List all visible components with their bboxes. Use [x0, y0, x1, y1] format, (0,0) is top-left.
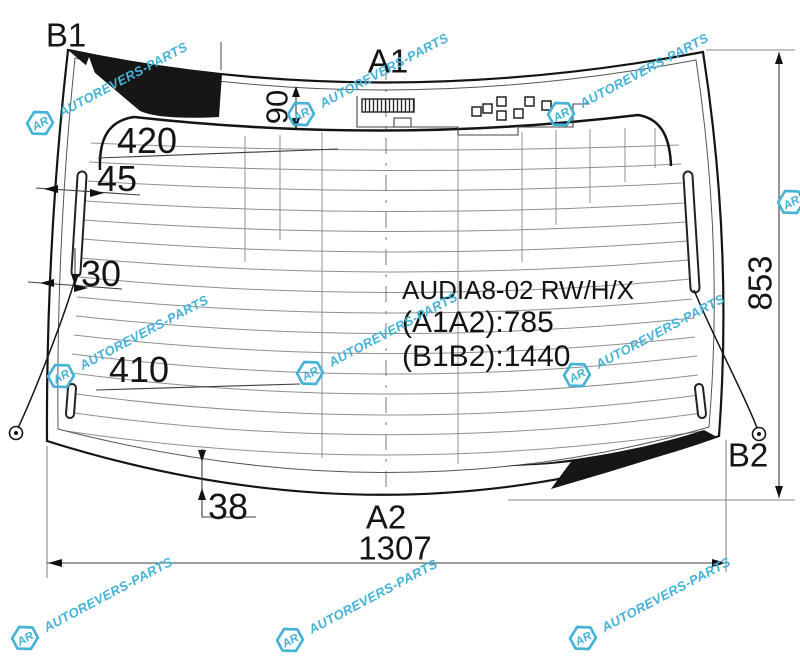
- antenna-notch: [394, 118, 411, 127]
- point-label-a1: A1: [368, 45, 408, 78]
- ceramic-band-bottom-right: [500, 430, 717, 489]
- brake-light-element: [362, 99, 414, 112]
- ar-logo-icon: AR: [561, 616, 604, 659]
- defroster-field-border: [100, 115, 671, 170]
- dim-edge-to-heater: 45: [97, 161, 137, 197]
- glass-diagram-page: { "title_block": { "part_code": "AUDIA8-…: [0, 0, 800, 600]
- point-label-b1: B1: [46, 19, 86, 52]
- dim-right-height: 853: [744, 255, 777, 310]
- ar-logo-icon: AR: [3, 616, 46, 659]
- svg-text:AR: AR: [280, 632, 302, 651]
- spec-a1a2: (A1A2):785: [402, 307, 634, 339]
- dim-bottom-width: 1307: [358, 532, 431, 565]
- part-code: AUDIA8-02 RW/H/X: [402, 276, 634, 304]
- dim-band-height: 90: [262, 90, 293, 124]
- antenna-squares: [472, 97, 551, 120]
- point-label-b2: B2: [728, 439, 768, 472]
- dim-bottom-gap: 38: [208, 489, 248, 525]
- svg-text:AR: AR: [15, 630, 37, 649]
- dim-lower-edge-offset: 30: [81, 256, 121, 292]
- spec-block: AUDIA8-02 RW/H/X (A1A2):785 (B1B2):1440: [402, 276, 634, 372]
- ar-logo-icon: AR: [268, 618, 311, 661]
- svg-text:AR: AR: [573, 630, 595, 649]
- dim-lower-left: 410: [109, 352, 169, 388]
- spec-b1b2: (B1B2):1440: [402, 341, 634, 373]
- dim-upper-left: 420: [117, 123, 177, 159]
